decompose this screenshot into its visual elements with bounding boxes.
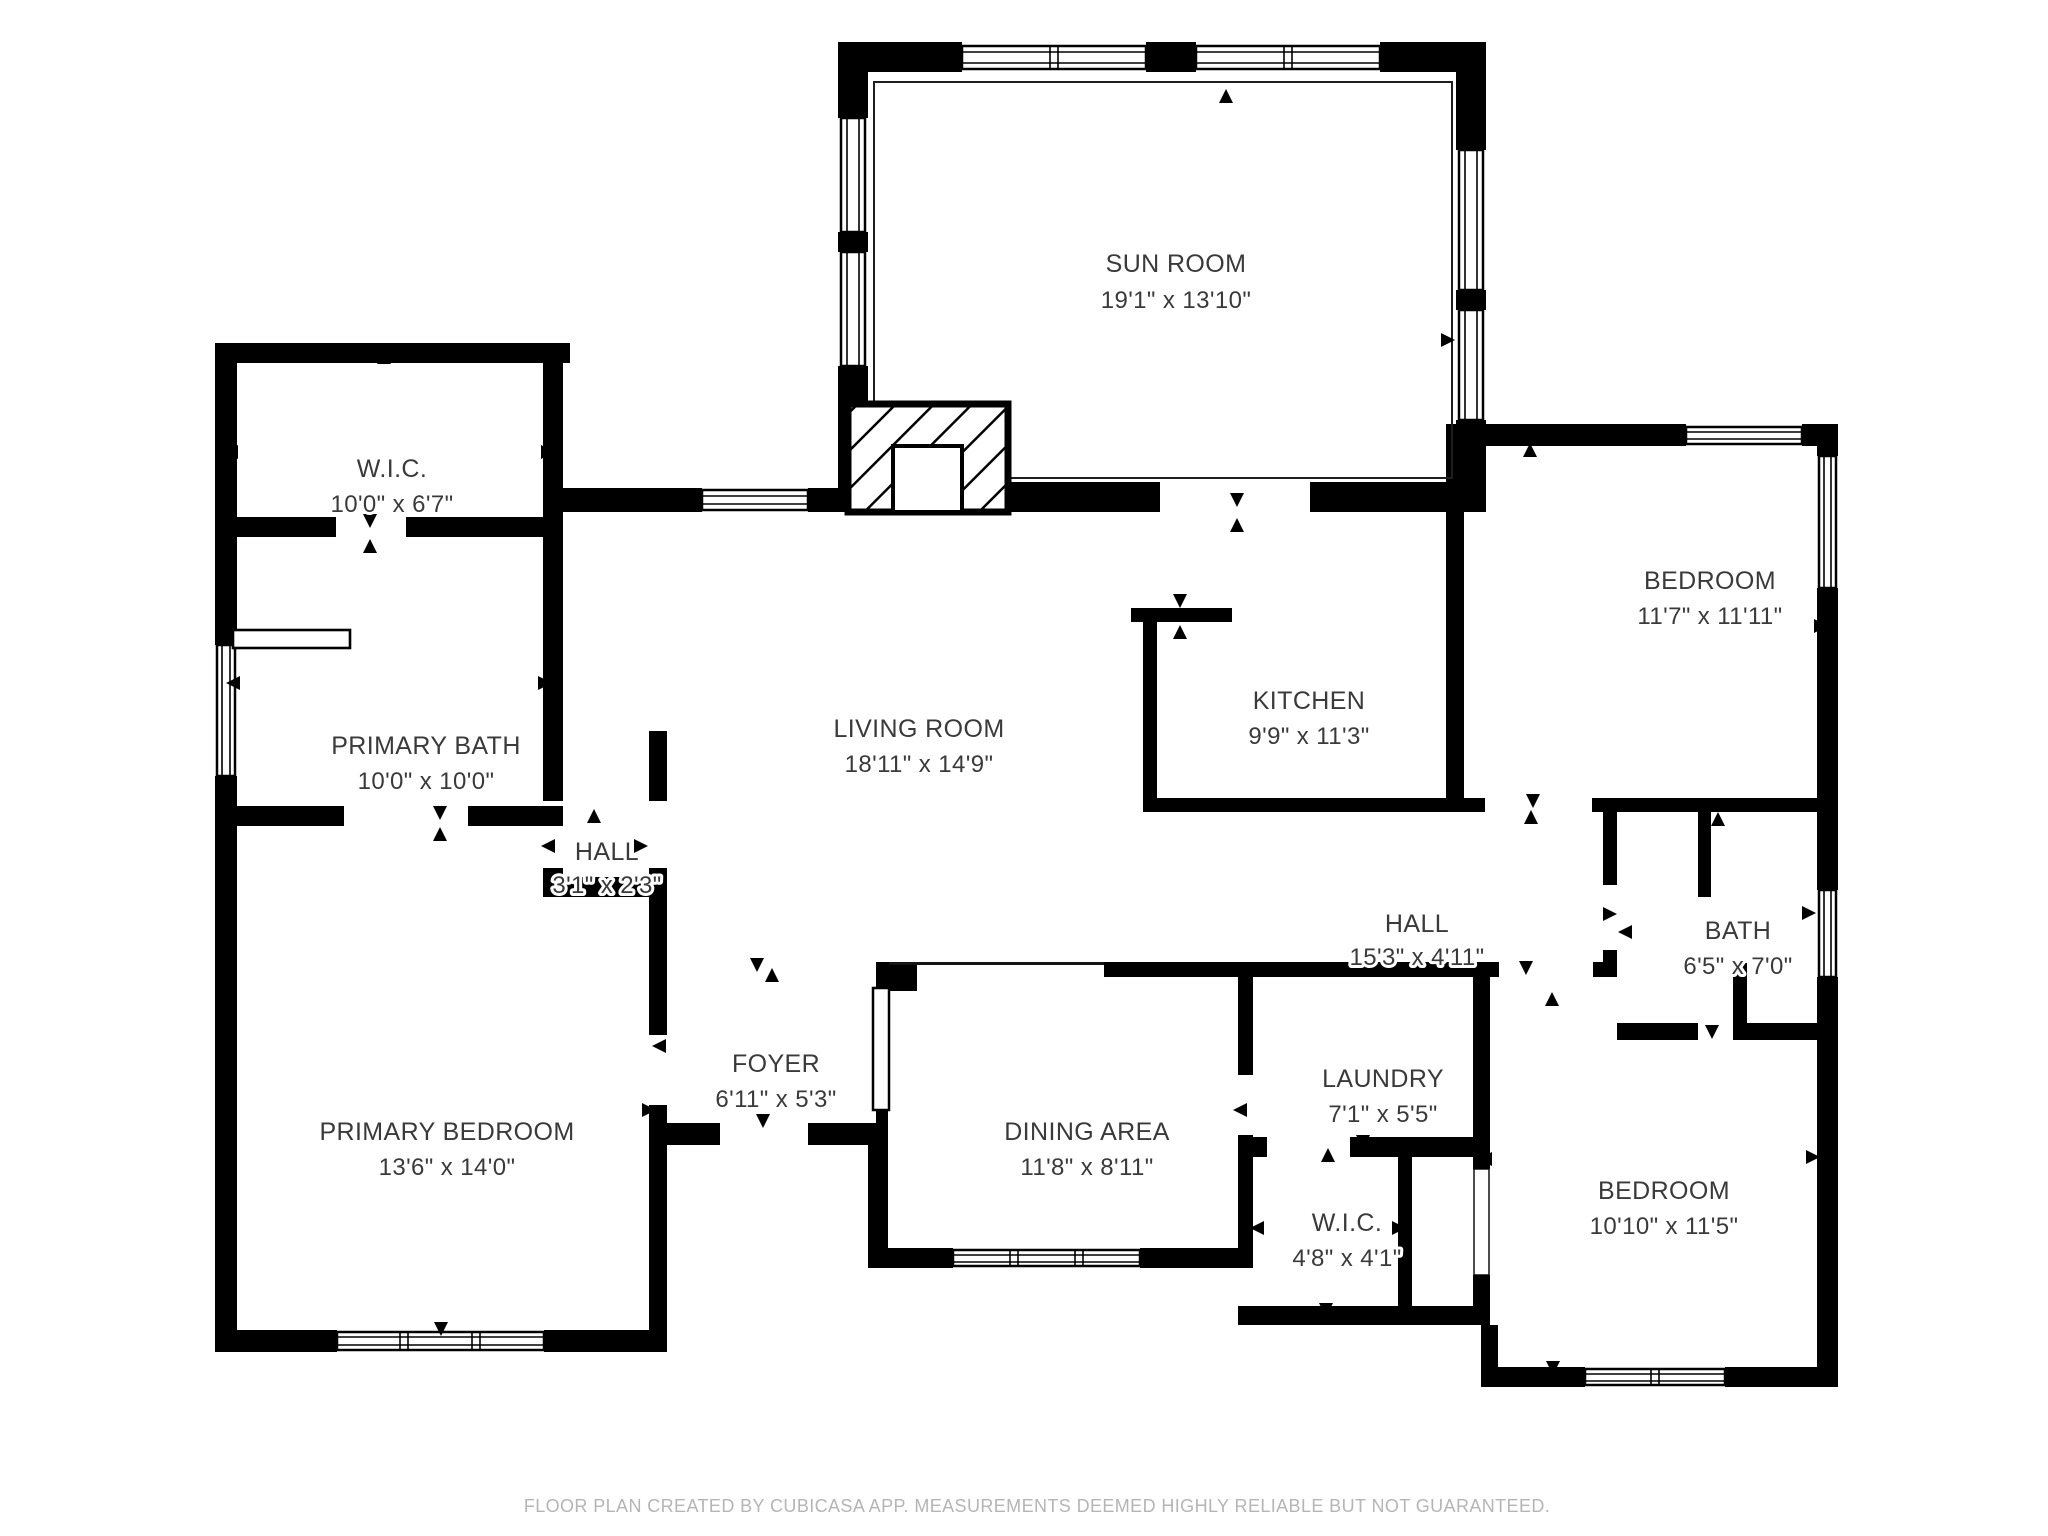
floor-plan-page: SUN ROOM 19'1" x 13'10" W.I.C. 10'0" x 6… [0,0,2048,1536]
room-label-laundry: LAUNDRY 7'1" x 5'5" [1322,1065,1444,1128]
room-dims: 11'8" x 8'11" [1020,1154,1153,1181]
window-icon [1459,150,1483,290]
room-dims: 7'1" x 5'5" [1328,1101,1437,1128]
room-label-kitchen: KITCHEN 9'9" x 11'3" [1248,687,1369,750]
window-icon [1196,46,1380,69]
window-icon [1686,427,1802,444]
room-name: SUN ROOM [1106,250,1247,278]
room-name: PRIMARY BEDROOM [319,1118,574,1146]
room-labels: SUN ROOM 19'1" x 13'10" W.I.C. 10'0" x 6… [319,250,1792,1272]
room-label-dining-area: DINING AREA 11'8" x 8'11" [1004,1118,1170,1181]
room-label-living-room: LIVING ROOM 18'11" x 14'9" [833,715,1004,778]
window-icon [962,46,1146,69]
room-dims: 10'0" x 6'7" [330,491,453,518]
window-icon [1459,310,1483,420]
room-name: BEDROOM [1644,567,1776,595]
footer-disclaimer: FLOOR PLAN CREATED BY CUBICASA APP. MEAS… [524,1496,1550,1516]
window-icon [702,490,808,510]
room-label-bath: BATH 6'5" x 7'0" [1683,917,1792,980]
room-name: DINING AREA [1004,1118,1170,1146]
room-dims: 15'3" x 4'11" [1349,944,1484,971]
room-dims: 11'7" x 11'11" [1637,603,1782,630]
room-label-foyer: FOYER 6'11" x 5'3" [715,1050,836,1113]
window-icon [953,1250,1140,1266]
room-dims: 9'9" x 11'3" [1248,723,1369,750]
closet-opening [1474,1169,1489,1275]
window-icon [1585,1369,1725,1385]
room-dims: 6'11" x 5'3" [715,1086,836,1113]
room-label-primary-bath: PRIMARY BATH 10'0" x 10'0" [331,732,521,795]
room-dims: 10'10" x 11'5" [1590,1213,1739,1240]
room-name: W.I.C. [357,455,427,483]
room-dims: 18'11" x 14'9" [845,751,994,778]
window-icon [1819,890,1836,977]
window-icon [1819,456,1836,588]
room-name: FOYER [732,1050,820,1078]
room-name: W.I.C. [1312,1209,1382,1237]
room-name: KITCHEN [1253,687,1366,715]
room-name: HALL [575,838,639,866]
windows [217,46,1836,1385]
room-label-hall: HALL 15'3" x 4'11" [1349,910,1484,971]
window-icon [841,252,865,366]
walls [215,42,1838,1387]
room-dims: 19'1" x 13'10" [1101,287,1252,314]
window-icon [841,118,865,232]
room-label-wic-small: W.I.C. 4'8" x 4'1" [1292,1209,1401,1272]
room-dims: 13'6" x 14'0" [379,1154,516,1181]
room-label-primary-bedroom: PRIMARY BEDROOM 13'6" x 14'0" [319,1118,574,1181]
room-name: PRIMARY BATH [331,732,521,760]
room-name: BEDROOM [1598,1177,1730,1205]
open-door-leaf [873,988,889,1110]
bath-counter [233,630,350,648]
room-label-wic-primary: W.I.C. 10'0" x 6'7" [330,455,453,518]
fireplace-icon [848,404,1008,512]
room-dims: 4'8" x 4'1" [1292,1245,1401,1272]
floor-plan-canvas: SUN ROOM 19'1" x 13'10" W.I.C. 10'0" x 6… [0,0,2048,1536]
room-name: BATH [1705,917,1771,945]
room-dims: 3'1" x 2'3" [552,872,661,899]
room-name: HALL [1385,910,1449,938]
window-icon [217,645,235,776]
room-name: LIVING ROOM [833,715,1004,743]
room-label-bedroom-se: BEDROOM 10'10" x 11'5" [1590,1177,1739,1240]
room-name: LAUNDRY [1322,1065,1444,1093]
room-dims: 10'0" x 10'0" [358,768,495,795]
room-dims: 6'5" x 7'0" [1683,953,1792,980]
room-label-bedroom-ne: BEDROOM 11'7" x 11'11" [1637,567,1782,630]
room-label-sun-room: SUN ROOM 19'1" x 13'10" [1101,250,1252,314]
